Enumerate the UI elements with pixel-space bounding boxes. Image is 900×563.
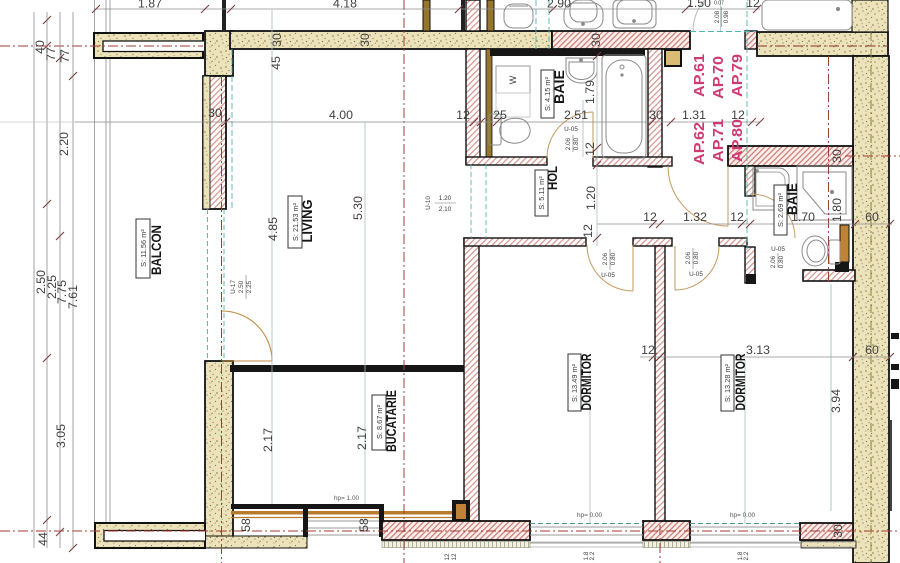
svg-text:77: 77 bbox=[58, 49, 72, 63]
svg-text:2.51: 2.51 bbox=[564, 108, 588, 122]
svg-text:U-17: U-17 bbox=[230, 280, 237, 294]
svg-text:S: 13.49 m²: S: 13.49 m² bbox=[570, 363, 579, 402]
svg-text:BAIE: BAIE bbox=[785, 183, 800, 215]
svg-text:S: 11.56 m²: S: 11.56 m² bbox=[139, 229, 148, 267]
svg-text:hp= 1.00: hp= 1.00 bbox=[334, 495, 359, 502]
svg-text:12: 12 bbox=[641, 343, 655, 357]
svg-text:hp= 0.00: hp= 0.00 bbox=[577, 512, 602, 519]
svg-text:BUCATARIE: BUCATARIE bbox=[384, 390, 399, 452]
svg-text:12: 12 bbox=[456, 108, 470, 122]
svg-text:1.79: 1.79 bbox=[583, 80, 597, 104]
svg-text:2.90: 2.90 bbox=[547, 0, 571, 11]
svg-text:LIVING: LIVING bbox=[300, 200, 315, 243]
svg-text:2.06: 2.06 bbox=[685, 251, 692, 264]
svg-text:HOL: HOL bbox=[545, 166, 560, 190]
svg-text:S: 2.69 m²: S: 2.69 m² bbox=[776, 192, 785, 227]
svg-text:60: 60 bbox=[865, 210, 879, 224]
svg-text:3.13: 3.13 bbox=[746, 343, 770, 357]
svg-text:1.87: 1.87 bbox=[138, 0, 162, 11]
svg-text:1.20: 1.20 bbox=[439, 195, 452, 202]
svg-text:0.80: 0.80 bbox=[610, 252, 617, 265]
svg-text:2.08: 2.08 bbox=[714, 10, 721, 23]
svg-text:BALCON: BALCON bbox=[149, 225, 164, 275]
svg-text:12: 12 bbox=[581, 224, 595, 238]
svg-text:0.80: 0.80 bbox=[778, 255, 785, 268]
svg-text:12: 12 bbox=[746, 0, 760, 10]
svg-text:1.80: 1.80 bbox=[830, 198, 844, 222]
svg-text:AP.71: AP.71 bbox=[710, 119, 727, 162]
svg-text:58: 58 bbox=[239, 518, 253, 532]
svg-text:2.2: 2.2 bbox=[743, 551, 750, 560]
svg-text:12: 12 bbox=[730, 210, 744, 224]
svg-text:77: 77 bbox=[44, 47, 58, 61]
svg-text:1.31: 1.31 bbox=[682, 108, 706, 122]
svg-text:30: 30 bbox=[589, 33, 603, 47]
svg-text:U-05: U-05 bbox=[601, 272, 615, 279]
svg-text:W: W bbox=[508, 75, 518, 84]
svg-text:BAIE: BAIE bbox=[552, 70, 567, 104]
svg-text:U-05: U-05 bbox=[564, 126, 578, 133]
svg-text:44: 44 bbox=[36, 532, 50, 546]
svg-text:30: 30 bbox=[208, 106, 222, 120]
svg-text:1.50: 1.50 bbox=[687, 0, 711, 10]
svg-text:2.50: 2.50 bbox=[238, 280, 245, 293]
svg-text:AP.80: AP.80 bbox=[729, 119, 746, 162]
svg-text:2.17: 2.17 bbox=[355, 426, 369, 450]
svg-text:12: 12 bbox=[583, 142, 597, 156]
svg-text:S: 4.15 m²: S: 4.15 m² bbox=[543, 76, 552, 111]
svg-text:4.00: 4.00 bbox=[329, 108, 353, 122]
svg-text:U-05: U-05 bbox=[771, 246, 785, 253]
svg-text:45: 45 bbox=[269, 56, 283, 70]
svg-text:2.25: 2.25 bbox=[246, 280, 253, 293]
svg-text:1.20: 1.20 bbox=[584, 186, 598, 210]
svg-text:30: 30 bbox=[270, 33, 284, 47]
svg-text:12: 12 bbox=[451, 553, 458, 561]
svg-text:2.2: 2.2 bbox=[589, 551, 596, 560]
svg-text:3.94: 3.94 bbox=[829, 389, 843, 413]
svg-text:12: 12 bbox=[444, 553, 451, 561]
svg-text:2.06: 2.06 bbox=[565, 137, 572, 150]
svg-text:30: 30 bbox=[830, 149, 844, 163]
svg-text:DORMITOR: DORMITOR bbox=[579, 353, 594, 410]
svg-text:30: 30 bbox=[649, 108, 663, 122]
svg-text:2.20: 2.20 bbox=[57, 132, 71, 156]
svg-text:5.30: 5.30 bbox=[351, 196, 365, 220]
svg-text:4.85: 4.85 bbox=[266, 217, 280, 241]
svg-text:7.61: 7.61 bbox=[66, 285, 80, 309]
svg-text:58: 58 bbox=[357, 518, 371, 532]
svg-text:0.07: 0.07 bbox=[714, 1, 724, 7]
svg-text:0.98: 0.98 bbox=[723, 10, 730, 23]
svg-text:U-05: U-05 bbox=[689, 271, 703, 278]
svg-text:25: 25 bbox=[493, 108, 507, 122]
svg-text:U-10: U-10 bbox=[425, 196, 432, 210]
svg-text:2.06: 2.06 bbox=[770, 255, 777, 268]
svg-text:AP.61: AP.61 bbox=[691, 54, 708, 97]
svg-text:2.10: 2.10 bbox=[439, 206, 452, 213]
svg-text:DORMITOR: DORMITOR bbox=[733, 353, 748, 410]
svg-text:4.18: 4.18 bbox=[333, 0, 357, 11]
svg-text:2.06: 2.06 bbox=[602, 252, 609, 265]
svg-text:hp= 0.00: hp= 0.00 bbox=[730, 512, 755, 519]
svg-text:60: 60 bbox=[865, 343, 879, 357]
svg-text:AP.70: AP.70 bbox=[710, 56, 727, 99]
svg-text:AP.79: AP.79 bbox=[729, 54, 746, 97]
svg-text:S: 8.67 m²: S: 8.67 m² bbox=[375, 404, 384, 439]
svg-text:S: 13.28 m²: S: 13.28 m² bbox=[723, 363, 732, 402]
svg-text:AP.62: AP.62 bbox=[691, 122, 708, 165]
svg-text:30: 30 bbox=[831, 524, 845, 538]
svg-text:S: 21.53 m²: S: 21.53 m² bbox=[291, 202, 300, 241]
svg-text:0.80: 0.80 bbox=[693, 251, 700, 264]
svg-text:3.05: 3.05 bbox=[54, 424, 68, 448]
svg-text:1.32: 1.32 bbox=[683, 210, 707, 224]
svg-text:0.80: 0.80 bbox=[573, 137, 580, 150]
svg-text:30: 30 bbox=[358, 33, 372, 47]
svg-text:2.17: 2.17 bbox=[261, 428, 275, 452]
svg-text:12: 12 bbox=[643, 210, 657, 224]
